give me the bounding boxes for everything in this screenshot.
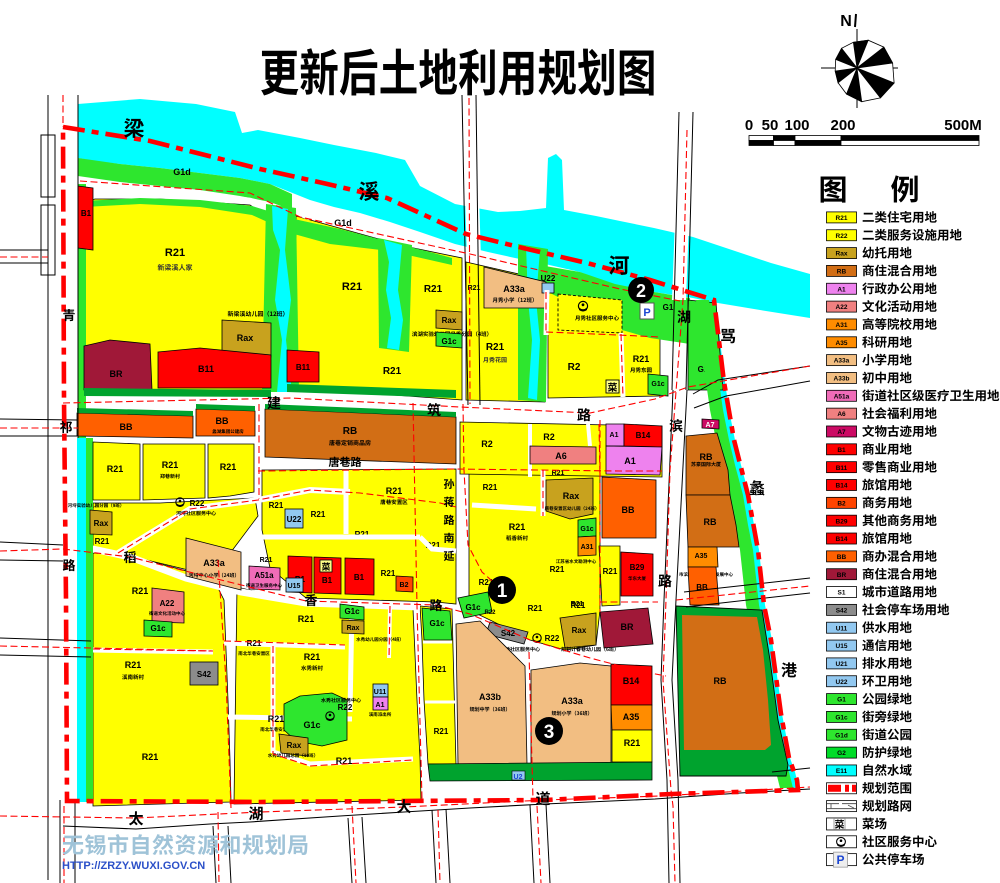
svg-text:S1: S1 [838, 590, 846, 597]
svg-text:U22: U22 [541, 274, 556, 283]
svg-text:R21: R21 [571, 601, 584, 608]
svg-text:BR: BR [621, 622, 634, 632]
svg-text:R2: R2 [543, 432, 555, 442]
svg-text:R21: R21 [260, 557, 273, 564]
svg-text:BR: BR [837, 572, 847, 579]
svg-text:B11: B11 [198, 364, 214, 374]
svg-text:B1: B1 [837, 447, 846, 454]
svg-text:A22: A22 [836, 304, 848, 311]
svg-text:R21: R21 [381, 569, 396, 578]
svg-text:A7: A7 [706, 422, 715, 429]
svg-text:R2: R2 [568, 362, 581, 373]
svg-text:A22: A22 [160, 599, 175, 608]
svg-text:R22: R22 [338, 703, 353, 712]
svg-text:R21: R21 [268, 714, 285, 724]
svg-text:B29: B29 [630, 563, 645, 572]
svg-text:P: P [836, 853, 844, 867]
svg-text:A51a: A51a [254, 571, 274, 580]
svg-text:R21: R21 [624, 738, 641, 748]
svg-text:R21: R21 [509, 522, 526, 532]
svg-text:R21: R21 [603, 567, 618, 576]
svg-text:R21: R21 [550, 565, 565, 574]
svg-text:A51a: A51a [834, 393, 850, 400]
svg-text:R21: R21 [424, 284, 443, 295]
svg-text:R21: R21 [386, 486, 403, 496]
svg-text:100: 100 [784, 117, 809, 134]
svg-text:Rax: Rax [572, 626, 587, 635]
svg-text:R22: R22 [484, 610, 496, 616]
svg-text:R21: R21 [432, 665, 447, 674]
svg-text:R21: R21 [342, 281, 362, 293]
svg-text:S42: S42 [197, 670, 212, 679]
svg-text:U15: U15 [836, 643, 848, 650]
svg-text:R21: R21 [311, 510, 326, 519]
svg-text:0: 0 [745, 117, 753, 134]
svg-text:U21: U21 [836, 661, 848, 668]
svg-text:A33a: A33a [203, 558, 226, 568]
svg-text:R2: R2 [481, 439, 493, 449]
svg-text:B2: B2 [837, 500, 846, 507]
svg-text:HTTP://ZRZY.WUXI.GOV.CN: HTTP://ZRZY.WUXI.GOV.CN [62, 860, 205, 872]
svg-text:A33b: A33b [834, 376, 850, 383]
svg-text:A33b: A33b [479, 692, 502, 702]
svg-text:A1: A1 [837, 286, 846, 293]
svg-text:Rax: Rax [442, 316, 457, 325]
svg-text:RB: RB [700, 452, 713, 462]
svg-text:A1: A1 [376, 702, 385, 709]
svg-text:BB: BB [216, 416, 229, 426]
svg-text:A6: A6 [555, 451, 567, 461]
svg-text:50: 50 [762, 117, 779, 134]
svg-text:A35: A35 [695, 553, 708, 560]
svg-text:U2: U2 [514, 774, 523, 781]
svg-text:B11: B11 [836, 465, 848, 472]
svg-text:G1c: G1c [150, 624, 166, 633]
svg-text:RB: RB [837, 269, 847, 276]
svg-text:U11: U11 [374, 689, 387, 696]
svg-text:R21: R21 [383, 366, 402, 377]
svg-text:R21: R21 [434, 727, 449, 736]
svg-text:A33a: A33a [561, 696, 584, 706]
svg-text:R21: R21 [132, 586, 149, 596]
svg-text:B1: B1 [354, 573, 365, 582]
svg-text:G1c: G1c [344, 607, 360, 616]
svg-text:R22: R22 [190, 499, 205, 508]
svg-text:B14: B14 [836, 483, 848, 490]
svg-text:A1: A1 [610, 432, 619, 439]
svg-text:2: 2 [636, 281, 646, 301]
svg-text:Rax: Rax [563, 491, 580, 501]
svg-text:A1: A1 [624, 456, 636, 466]
svg-text:A33a: A33a [503, 284, 526, 294]
svg-text:R21: R21 [125, 660, 142, 670]
svg-text:G1c: G1c [580, 526, 593, 533]
svg-text:G1d: G1d [173, 167, 191, 177]
svg-text:R21: R21 [836, 215, 848, 222]
svg-text:G1: G1 [663, 303, 674, 312]
svg-text:BB: BB [622, 505, 635, 515]
svg-text:R21: R21 [142, 752, 159, 762]
svg-text:U22: U22 [287, 515, 302, 524]
svg-text:R21: R21 [107, 464, 124, 474]
svg-text:A31: A31 [581, 544, 594, 551]
svg-text:R21: R21 [304, 652, 321, 662]
svg-text:R21: R21 [95, 537, 110, 546]
svg-text:B14: B14 [636, 431, 651, 440]
svg-text:1: 1 [497, 581, 508, 602]
svg-text:R21: R21 [298, 614, 315, 624]
svg-text:R22: R22 [545, 634, 560, 643]
svg-text:U15: U15 [288, 583, 301, 590]
svg-text:P: P [643, 307, 650, 319]
svg-text:R21: R21 [269, 501, 284, 510]
svg-text:R21: R21 [165, 247, 185, 259]
svg-text:B11: B11 [296, 363, 311, 372]
svg-text:E11: E11 [836, 768, 848, 775]
svg-text:Rax: Rax [94, 519, 109, 528]
svg-text:A7: A7 [837, 429, 846, 436]
svg-text:Rax: Rax [836, 251, 848, 258]
svg-text:BB: BB [120, 422, 133, 432]
svg-text:R21: R21 [633, 354, 650, 364]
svg-text:A35: A35 [623, 712, 640, 722]
svg-text:G2: G2 [837, 750, 846, 757]
svg-text:R21: R21 [162, 460, 179, 470]
svg-text:R21: R21 [552, 470, 565, 477]
svg-text:A6: A6 [837, 411, 846, 418]
svg-text:200: 200 [830, 117, 855, 134]
svg-text:R21: R21 [220, 462, 237, 472]
svg-text:G1c: G1c [441, 337, 457, 346]
svg-text:B14: B14 [836, 536, 848, 543]
svg-text:G1c: G1c [303, 720, 320, 730]
svg-text:RB: RB [704, 517, 717, 527]
svg-text:R22: R22 [836, 233, 848, 240]
svg-text:G1d: G1d [835, 732, 848, 739]
svg-text:A31: A31 [836, 322, 848, 329]
svg-text:G1c: G1c [835, 715, 848, 722]
svg-text:G1c: G1c [429, 619, 445, 628]
svg-text:B1: B1 [322, 576, 333, 585]
svg-text:BR: BR [110, 369, 123, 379]
svg-text:G1d: G1d [334, 218, 352, 228]
svg-text:A35: A35 [836, 340, 848, 347]
svg-text:R21: R21 [486, 342, 505, 353]
svg-text:G1c: G1c [465, 603, 481, 612]
svg-text:BB: BB [837, 554, 847, 561]
svg-text:A33a: A33a [834, 358, 850, 365]
svg-text:RB: RB [343, 426, 357, 437]
svg-text:B14: B14 [623, 676, 640, 686]
svg-text:N: N [840, 13, 852, 30]
svg-text:Rax: Rax [287, 741, 302, 750]
svg-text:G1: G1 [837, 697, 846, 704]
svg-text:Rax: Rax [237, 333, 254, 343]
svg-text:U11: U11 [836, 625, 848, 632]
svg-text:U22: U22 [836, 679, 848, 686]
svg-text:S42: S42 [836, 608, 848, 615]
svg-text:B29: B29 [836, 518, 848, 525]
svg-text:500M: 500M [944, 117, 982, 134]
svg-text:3: 3 [544, 722, 555, 743]
svg-text:RB: RB [714, 676, 727, 686]
svg-text:Rax: Rax [347, 625, 360, 632]
svg-text:R21: R21 [528, 604, 543, 613]
svg-text:B2: B2 [400, 582, 409, 589]
svg-text:R21: R21 [247, 639, 262, 648]
svg-text:B1: B1 [81, 209, 92, 218]
svg-text:R21: R21 [483, 483, 498, 492]
svg-text:G1c: G1c [651, 381, 664, 388]
